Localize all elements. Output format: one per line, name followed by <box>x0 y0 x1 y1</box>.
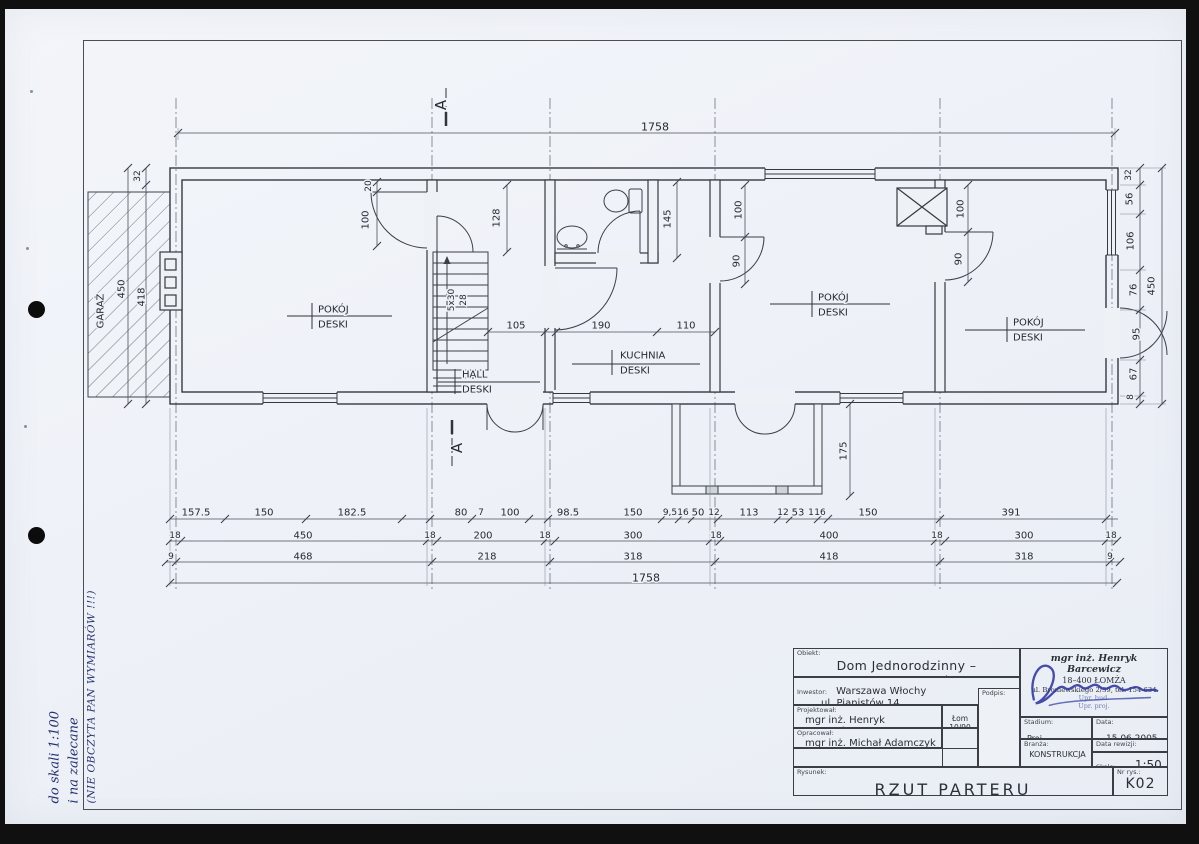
opracowal-value: mgr inż. Michał Adamczyk <box>805 738 938 748</box>
plan-text: DESKI <box>1013 333 1043 344</box>
titleblock-cell-obiekt: Obiekt: Dom Jednorodzinny – Inwentaryzac… <box>793 648 1020 677</box>
plan-text: 391 <box>1001 508 1020 519</box>
podpis-label: Podpis: <box>982 690 1016 697</box>
data-rewizji-label: Data rewizji: <box>1096 741 1164 748</box>
plan-text: 53 <box>792 508 805 519</box>
plan-text: 18 <box>931 531 943 541</box>
signature-scribble <box>1021 649 1167 716</box>
uprawnienia-value: Łom 10/90 <box>946 714 974 728</box>
plan-text: 150 <box>623 508 642 519</box>
plan-text: 105 <box>506 321 525 332</box>
plan-text: 50 <box>692 508 705 519</box>
skala-value: 1:50 <box>1135 758 1162 767</box>
plan-text: POKÓJ <box>318 303 349 316</box>
plan-text: DESKI <box>818 308 848 319</box>
plan-text: 100 <box>734 200 745 219</box>
porch <box>672 404 822 494</box>
plan-text: 100 <box>361 210 372 229</box>
plan-text: 95 <box>1132 328 1143 341</box>
plan-text: 20 <box>364 180 374 192</box>
plan-annotations: 1758AA32450418GARAŻ201001285x30281451009… <box>94 99 1158 584</box>
nr-rys-label: Nr rys.: <box>1117 769 1164 776</box>
titleblock-cell-data-rewizji: Data rewizji: <box>1092 739 1168 752</box>
plan-text: 18 <box>169 531 181 541</box>
plan-text: 18 <box>424 531 436 541</box>
plan-text: 157.5 <box>182 508 211 519</box>
drawing-title: RZUT PARTERU <box>797 780 1109 796</box>
obiekt-label: Obiekt: <box>797 650 1016 657</box>
plan-text: 418 <box>137 287 148 306</box>
centerlines <box>176 98 1112 592</box>
titleblock-cell-stamp: mgr inż. Henryk Barcewicz 18–400 ŁOMŻA u… <box>1020 648 1168 717</box>
opracowal-label: Opracował: <box>797 730 938 737</box>
plan-text: 100 <box>500 508 519 519</box>
plan-text: DESKI <box>620 366 650 377</box>
plan-text: 76 <box>1129 284 1140 297</box>
plan-text: POKÓJ <box>818 291 849 304</box>
plan-text: POKÓJ <box>1013 316 1044 329</box>
plan-text: 18 <box>1105 531 1117 541</box>
interior-walls <box>427 180 945 392</box>
branza-label: Branża: <box>1024 741 1088 748</box>
plan-text: 300 <box>623 531 642 542</box>
plan-text: 113 <box>739 508 758 519</box>
plan-text: 16 <box>814 508 826 518</box>
plan-text: 56 <box>1125 193 1136 206</box>
inwestor-label: Inwestor: <box>797 688 827 696</box>
titleblock-cell-stadium: Stadium: Proj. BUDOWLANY <box>1020 717 1092 739</box>
stairs <box>433 252 488 386</box>
plan-text: 67 <box>1129 368 1140 381</box>
plan-text: 16 <box>677 508 689 518</box>
plan-text: 468 <box>293 552 312 563</box>
titleblock-cell-branza: Branża: KONSTRUKCJA <box>1020 739 1092 767</box>
plan-text: 418 <box>819 552 838 563</box>
plan-text: A <box>448 442 466 453</box>
title-block: Obiekt: Dom Jednorodzinny – Inwentaryzac… <box>793 648 1168 796</box>
wall-openings <box>263 166 1120 406</box>
room-label-lines <box>287 291 1085 394</box>
plan-text: 12 <box>777 508 788 518</box>
plan-text: GARAŻ <box>94 293 107 328</box>
plan-text: A <box>432 99 450 110</box>
plan-text: KUCHNIA <box>620 351 666 362</box>
drawing-number: K02 <box>1117 776 1164 792</box>
titleblock-cell-rysunek: Rysunek: RZUT PARTERU <box>793 767 1113 796</box>
skala-label: Skala: <box>1096 763 1116 767</box>
plan-text: 175 <box>839 441 850 460</box>
projektowal-label: Projektował: <box>797 707 938 714</box>
windows <box>263 168 1118 404</box>
inwestor-value-line1: Warszawa Włochy <box>836 686 926 697</box>
titleblock-cell-opracowal: Opracował: mgr inż. Michał Adamczyk <box>793 728 942 748</box>
plan-text: 1758 <box>632 572 660 585</box>
plan-text: 90 <box>732 255 743 268</box>
plan-text: 450 <box>293 531 312 542</box>
plan-text: 318 <box>1014 552 1033 563</box>
titleblock-cell-skala: Skala: 1:50 <box>1092 752 1168 767</box>
plan-text: 9,5 <box>663 508 677 518</box>
plan-text: HALL <box>462 370 488 381</box>
stadium-label: Stadium: <box>1024 719 1088 726</box>
plan-text: 12 <box>708 508 719 518</box>
titleblock-cell-nr-rys: Nr rys.: K02 <box>1113 767 1168 796</box>
plan-text: 7 <box>478 508 484 518</box>
plan-text: 190 <box>591 321 610 332</box>
rysunek-label: Rysunek: <box>797 769 1109 776</box>
plan-text: 182.5 <box>338 508 367 519</box>
plan-text: 98.5 <box>557 508 579 519</box>
plan-text: 32 <box>1124 169 1134 180</box>
plan-text: 18 <box>539 531 551 541</box>
plan-text: 150 <box>254 508 273 519</box>
plan-text: 128 <box>492 208 503 227</box>
note-line: i na zalecane <box>65 553 84 803</box>
sink-icon <box>557 226 587 248</box>
plan-text: 300 <box>1014 531 1033 542</box>
plan-text: 80 <box>455 508 468 519</box>
data-label: Data: <box>1096 719 1164 726</box>
plan-text: 150 <box>858 508 877 519</box>
titleblock-cell-uprawnienia: Łom 10/90 <box>942 705 978 728</box>
plan-text: 100 <box>956 199 967 218</box>
toilet-icon <box>604 190 628 212</box>
plan-text: 106 <box>1126 231 1137 250</box>
plan-text: 9 <box>168 552 174 562</box>
handwritten-note: do skali 1:100 i na zalecane (NIE OBCZYT… <box>47 553 100 803</box>
plan-text: 318 <box>623 552 642 563</box>
note-line: do skali 1:100 <box>47 553 66 803</box>
plan-text: 450 <box>117 279 128 298</box>
plan-text: 110 <box>676 321 695 332</box>
titleblock-cell-data: Data: 15.06.2005 <box>1092 717 1168 739</box>
toilet-tank <box>629 189 642 213</box>
plan-text: 1 <box>808 508 814 518</box>
plan-text: 200 <box>473 531 492 542</box>
plan-text: 218 <box>477 552 496 563</box>
titleblock-cell-podpis: Podpis: <box>978 688 1020 767</box>
projektowal-value: mgr inż. Henryk Barcewicz <box>805 715 938 728</box>
plan-text: 145 <box>663 209 674 228</box>
titleblock-cell-projektowal: Projektował: mgr inż. Henryk Barcewicz <box>793 705 942 728</box>
plan-text: 18 <box>710 531 722 541</box>
plan-text: 400 <box>819 531 838 542</box>
note-line: (NIE OBCZYTA PAN WYMIARÓW !!!) <box>84 553 99 803</box>
branza-value: KONSTRUKCJA <box>1027 750 1088 759</box>
plan-text: 90 <box>954 253 965 266</box>
plan-text: 32 <box>133 170 143 181</box>
plan-text: 450 <box>1147 276 1158 295</box>
obiekt-value: Dom Jednorodzinny – Inwentaryzacja <box>797 658 1016 677</box>
plan-text: 9 <box>1107 552 1113 562</box>
titleblock-cell-empty2 <box>793 748 978 767</box>
plan-text: 8 <box>1126 394 1136 400</box>
plan-text: 1758 <box>641 121 669 134</box>
plan-text: DESKI <box>462 385 492 396</box>
plan-text: 5x30 <box>447 288 457 311</box>
plan-text: DESKI <box>318 320 348 331</box>
plan-text: 28 <box>459 294 469 306</box>
